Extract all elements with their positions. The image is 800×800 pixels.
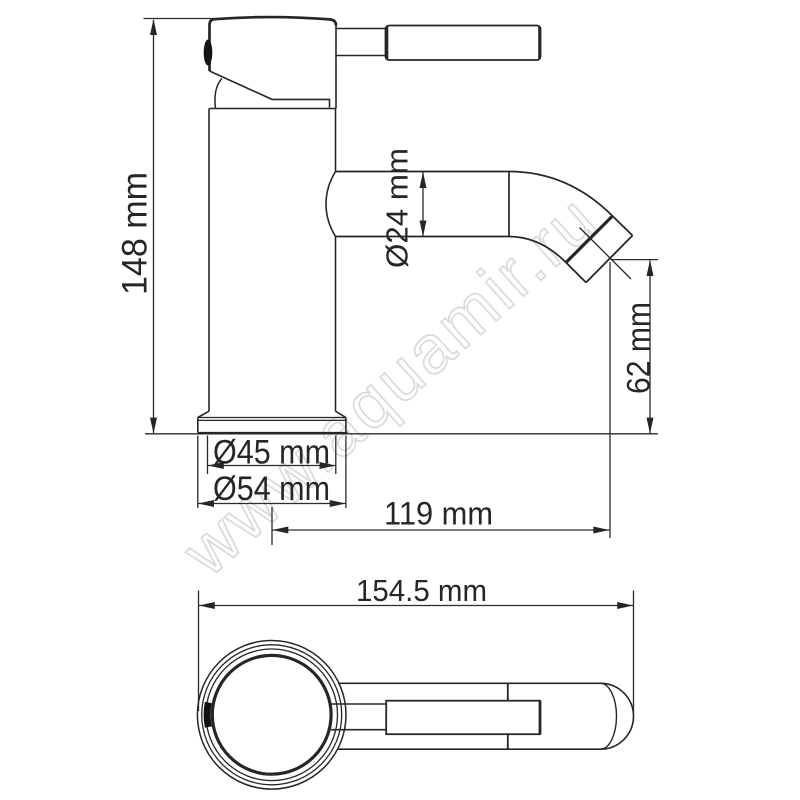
svg-text:Ø45 mm: Ø45 mm xyxy=(213,434,330,472)
svg-text:Ø24 mm: Ø24 mm xyxy=(380,148,415,268)
svg-text:154.5 mm: 154.5 mm xyxy=(356,573,487,608)
svg-text:148 mm: 148 mm xyxy=(115,172,155,295)
svg-text:62 mm: 62 mm xyxy=(621,302,657,394)
svg-text:119 mm: 119 mm xyxy=(384,496,493,532)
svg-text:Ø54 mm: Ø54 mm xyxy=(213,470,330,508)
